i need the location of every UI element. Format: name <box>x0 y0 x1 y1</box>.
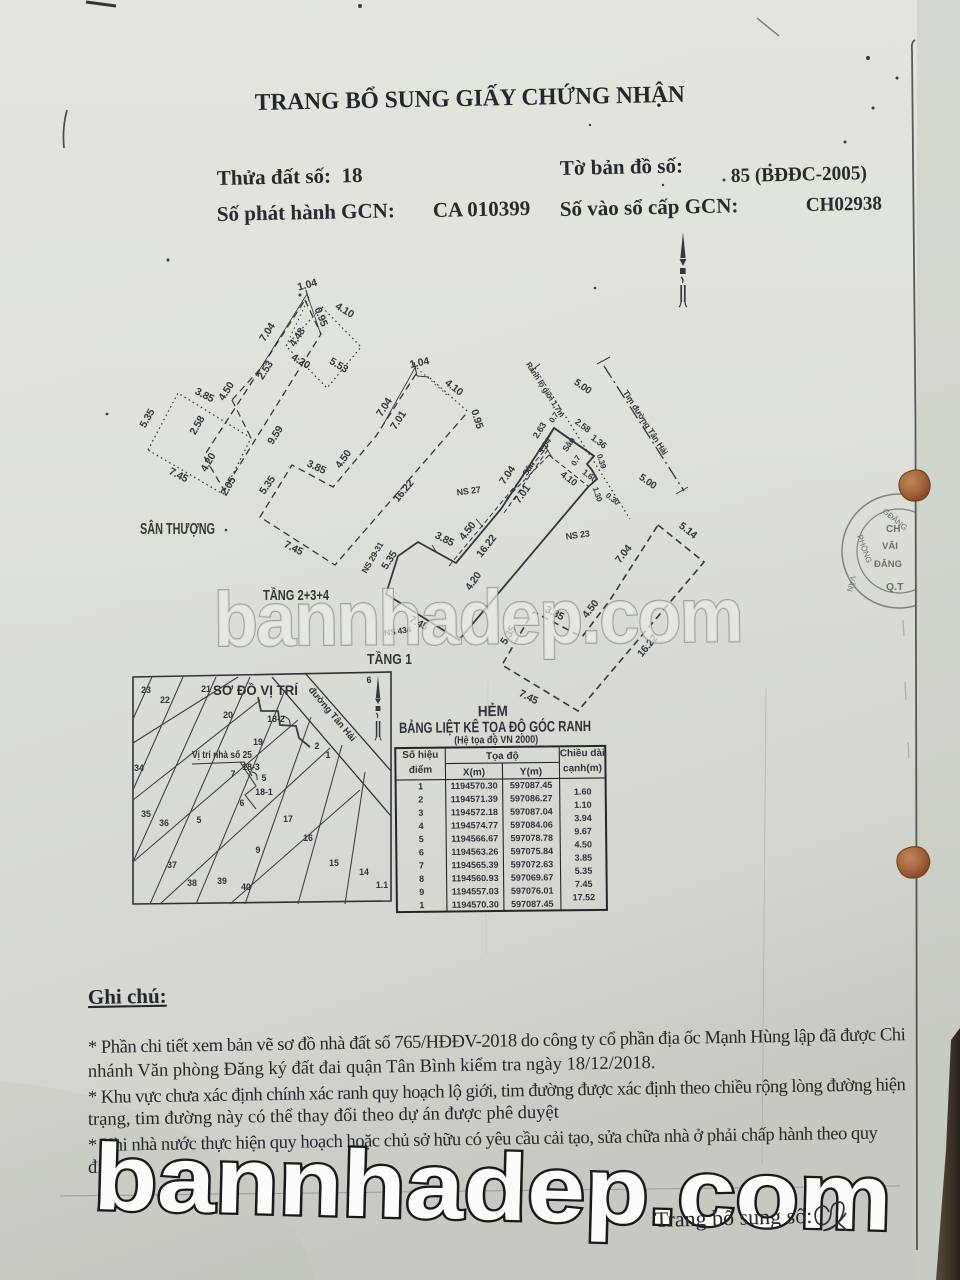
svg-text:2: 2 <box>315 741 320 751</box>
svg-text:17: 17 <box>283 814 293 824</box>
svg-text:17.52: 17.52 <box>572 892 595 902</box>
svg-text:Tọa độ: Tọa độ <box>486 751 519 762</box>
svg-text:18-3: 18-3 <box>242 762 260 772</box>
svg-text:14: 14 <box>359 867 369 877</box>
svg-text:1194557.03: 1194557.03 <box>452 886 499 896</box>
svg-text:Vị trí nhà số 25: Vị trí nhà số 25 <box>192 749 252 761</box>
svg-text:1194566.67: 1194566.67 <box>451 833 498 843</box>
svg-text:597086.27: 597086.27 <box>510 793 553 803</box>
svg-text:2: 2 <box>418 795 423 805</box>
svg-text:1194574.77: 1194574.77 <box>451 820 498 830</box>
svg-text:20: 20 <box>223 710 233 720</box>
svg-text:điểm: điểm <box>409 764 433 776</box>
svg-text:3.94: 3.94 <box>574 813 592 823</box>
svg-text:Số phát hành GCN:: Số phát hành GCN: <box>217 198 395 226</box>
svg-text:9: 9 <box>256 845 261 855</box>
svg-text:16: 16 <box>303 833 313 843</box>
svg-text:1: 1 <box>326 750 331 760</box>
svg-text:1: 1 <box>419 900 424 910</box>
svg-text:37: 37 <box>167 860 177 870</box>
svg-text:38: 38 <box>187 878 197 888</box>
svg-text:39: 39 <box>217 876 227 886</box>
svg-text:Số vào sổ cấp GCN:: Số vào sổ cấp GCN: <box>560 193 739 221</box>
svg-text:6: 6 <box>419 847 424 857</box>
svg-text:597078.78: 597078.78 <box>510 833 553 843</box>
svg-text:Tờ bản đồ số:: Tờ bản đồ số: <box>560 153 684 180</box>
svg-text:1.60: 1.60 <box>574 787 592 797</box>
svg-text:23: 23 <box>141 685 151 695</box>
svg-text:15: 15 <box>329 858 339 868</box>
svg-text:1194565.39: 1194565.39 <box>451 860 498 870</box>
svg-text:1.10: 1.10 <box>574 800 592 810</box>
svg-text:597072.63: 597072.63 <box>511 859 554 869</box>
svg-text:cạnh(m): cạnh(m) <box>563 763 602 774</box>
svg-text:ĐĂNG: ĐĂNG <box>874 559 902 570</box>
svg-text:597069.67: 597069.67 <box>511 872 554 882</box>
svg-text:3: 3 <box>418 808 423 818</box>
svg-text:597075.84: 597075.84 <box>511 846 554 856</box>
svg-text:4: 4 <box>418 821 423 831</box>
svg-text:Trang bổ sung số:: Trang bổ sung số: <box>654 1203 812 1232</box>
svg-text:SÂN THƯỢNG: SÂN THƯỢNG <box>140 520 215 538</box>
svg-text:1194563.26: 1194563.26 <box>451 847 498 857</box>
svg-text:9.67: 9.67 <box>574 826 592 836</box>
svg-text:3.85: 3.85 <box>575 853 593 863</box>
svg-text:18-2: 18-2 <box>267 714 285 724</box>
svg-text:CH02938: CH02938 <box>806 193 883 216</box>
svg-text:X(m): X(m) <box>463 767 485 778</box>
svg-text:34: 34 <box>134 763 144 773</box>
svg-text:5: 5 <box>262 773 267 783</box>
svg-text:bannhadep.com: bannhadep.com <box>92 1124 892 1250</box>
svg-text:5.35: 5.35 <box>575 866 593 876</box>
svg-text:597087.04: 597087.04 <box>510 806 553 816</box>
svg-text:SƠ ĐỒ VỊ TRÍ: SƠ ĐỒ VỊ TRÍ <box>213 681 299 698</box>
svg-text:bannhadep.com: bannhadep.com <box>213 572 742 663</box>
svg-text:36: 36 <box>159 818 169 828</box>
svg-text:40: 40 <box>241 882 251 892</box>
svg-text:Chiều dài: Chiều dài <box>560 747 605 759</box>
svg-text:Ghi chú:: Ghi chú: <box>88 984 167 1009</box>
svg-text:Q.T: Q.T <box>886 581 904 593</box>
svg-text:7: 7 <box>231 769 236 779</box>
svg-text:Thửa đất số: 18: Thửa đất số: 18 <box>217 163 363 190</box>
svg-text:1194570.30: 1194570.30 <box>451 781 498 791</box>
svg-text:21: 21 <box>201 684 211 694</box>
svg-text:1194570.30: 1194570.30 <box>452 899 499 909</box>
svg-text:1.1: 1.1 <box>376 880 388 890</box>
svg-text:Số hiệu: Số hiệu <box>402 749 438 761</box>
svg-text:CA 010399: CA 010399 <box>433 196 531 222</box>
svg-text:19: 19 <box>253 737 263 747</box>
svg-text:9: 9 <box>419 887 424 897</box>
svg-text:1194571.39: 1194571.39 <box>451 794 498 804</box>
svg-text:597087.45: 597087.45 <box>510 780 553 790</box>
svg-text:CH: CH <box>886 524 900 535</box>
svg-text:1194560.93: 1194560.93 <box>452 873 499 883</box>
svg-text:35: 35 <box>141 809 151 819</box>
svg-text:VĂI: VĂI <box>882 541 898 552</box>
svg-text:1: 1 <box>418 781 423 791</box>
svg-text:4.50: 4.50 <box>574 839 592 849</box>
svg-text:HẺM: HẺM <box>478 703 508 720</box>
svg-text:597076.01: 597076.01 <box>511 886 554 896</box>
svg-text:22: 22 <box>160 695 170 705</box>
svg-text:6: 6 <box>366 675 371 685</box>
svg-text:7: 7 <box>419 860 424 870</box>
svg-text:7.45: 7.45 <box>575 879 593 889</box>
svg-text:1194572.18: 1194572.18 <box>451 807 498 817</box>
svg-text:6: 6 <box>240 798 245 808</box>
svg-text:(Hệ tọa độ VN 2000): (Hệ tọa độ VN 2000) <box>454 734 538 747</box>
svg-text:597087.45: 597087.45 <box>511 899 554 909</box>
svg-text:8: 8 <box>419 874 424 884</box>
svg-text:18-1: 18-1 <box>255 787 273 797</box>
svg-text:Y(m): Y(m) <box>520 767 542 778</box>
svg-text:85 (BĐĐC-2005): 85 (BĐĐC-2005) <box>731 162 867 187</box>
svg-text:597084.06: 597084.06 <box>510 820 553 830</box>
svg-text:5: 5 <box>197 815 202 825</box>
svg-text:5: 5 <box>419 834 424 844</box>
